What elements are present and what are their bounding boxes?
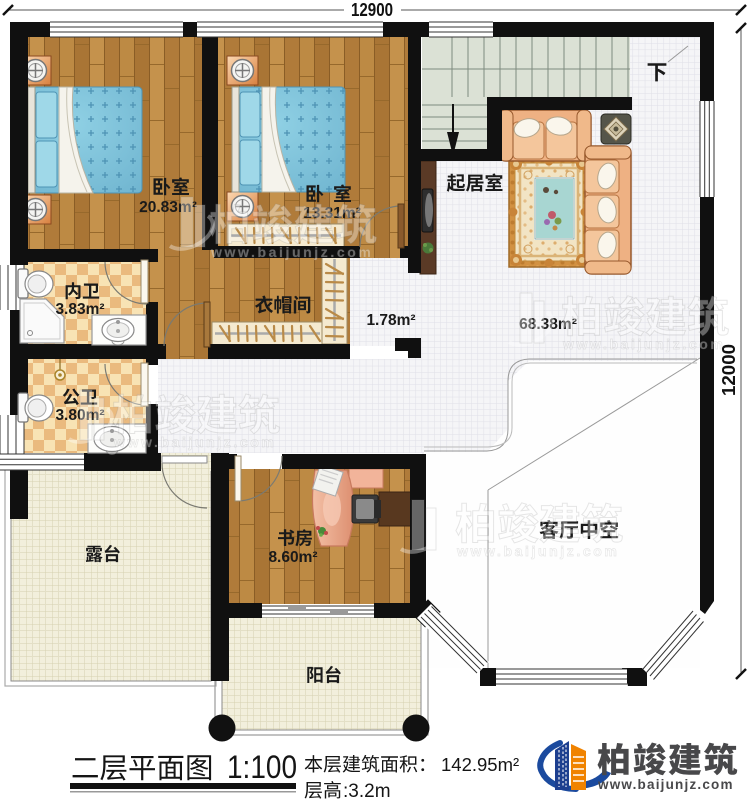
svg-text:8.60m²: 8.60m²: [268, 549, 317, 566]
svg-text:12000: 12000: [719, 344, 739, 396]
svg-text:1:100: 1:100: [227, 749, 297, 785]
svg-text:www.baijunjz.com: www.baijunjz.com: [113, 434, 276, 450]
svg-text:www.baijunjz.com: www.baijunjz.com: [562, 336, 725, 352]
svg-text:142.95m²: 142.95m²: [441, 754, 519, 775]
svg-text:1.78m²: 1.78m²: [366, 312, 415, 329]
svg-text:www.baijunjz.com: www.baijunjz.com: [597, 777, 734, 792]
svg-text::3.2m: :3.2m: [343, 781, 391, 802]
svg-text:12900: 12900: [351, 0, 393, 20]
svg-text:www.baijunjz.com: www.baijunjz.com: [456, 543, 619, 559]
svg-text:3.83m²: 3.83m²: [55, 301, 104, 318]
svg-text:www.baijunjz.com: www.baijunjz.com: [210, 244, 373, 260]
